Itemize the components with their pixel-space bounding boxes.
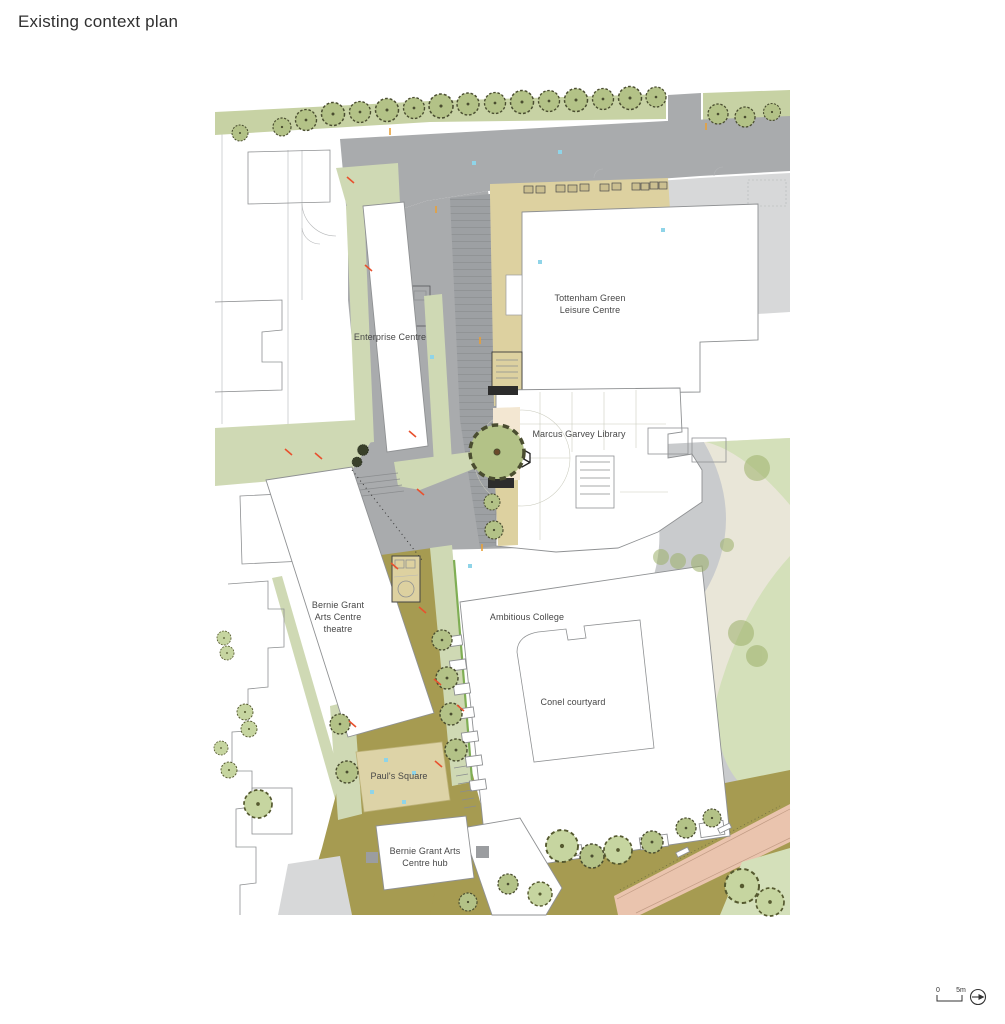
label-theatre-line1: Bernie Grant	[312, 600, 365, 610]
tree-icon	[641, 831, 663, 853]
tree-icon	[429, 94, 453, 118]
driveway-arc	[302, 204, 336, 244]
scale-start: 0	[936, 987, 940, 994]
tree-icon	[565, 89, 588, 112]
side-road-north	[668, 93, 701, 124]
tree-icon	[528, 882, 552, 906]
label-hub-line2: Centre hub	[402, 858, 448, 868]
tree-icon	[676, 818, 696, 838]
context-trees-west	[214, 631, 272, 818]
tree-icon	[436, 667, 458, 689]
tree-icon	[511, 91, 534, 114]
tree-icon	[445, 739, 467, 761]
tree-icon	[646, 87, 666, 107]
tree-icon	[221, 762, 237, 778]
leisure-notch	[506, 275, 522, 315]
tree-icon	[457, 93, 479, 115]
tree-icon	[376, 99, 399, 122]
context-building	[248, 150, 330, 204]
scale-bar: 0 5m	[936, 987, 985, 1005]
tree-trunk	[494, 449, 499, 454]
tree-icon	[322, 103, 345, 126]
tree-icon	[330, 714, 350, 734]
tree-icon	[498, 874, 518, 894]
north-arrow-icon	[971, 990, 986, 1005]
tree-icon	[220, 646, 234, 660]
scale-bracket	[937, 995, 962, 1001]
context-plan-page: Existing context plan	[0, 0, 1005, 1024]
tree-icon	[703, 809, 721, 827]
tree-icon	[352, 457, 362, 467]
label-library: Marcus Garvey Library	[532, 429, 626, 439]
tree-icon	[546, 830, 578, 862]
kiosk-group	[392, 556, 420, 602]
tree-icon	[619, 87, 642, 110]
tree-icon	[241, 721, 257, 737]
tree-icon	[708, 104, 728, 124]
tree-icon	[485, 521, 503, 539]
tree-icon	[350, 102, 371, 123]
tree-icon	[244, 790, 272, 818]
label-pauls-square: Paul's Square	[370, 771, 427, 781]
tree-icon	[358, 445, 369, 456]
curb-line	[288, 150, 302, 470]
tree-icon	[580, 844, 604, 868]
tree-icon	[459, 893, 477, 911]
label-theatre-line2: Arts Centre	[315, 612, 362, 622]
tree-icon	[593, 89, 614, 110]
context-buildings-southwest	[228, 581, 292, 915]
tree-icon	[604, 836, 632, 864]
tree-icon	[336, 761, 358, 783]
label-courtyard: Conel courtyard	[540, 697, 605, 707]
label-enterprise-centre: Enterprise Centre	[354, 332, 426, 342]
context-building	[215, 300, 282, 392]
hub-side-pad	[476, 846, 489, 858]
entrance-canopy-north	[488, 386, 518, 395]
hub-side-pad	[366, 852, 378, 863]
site-plan-map: Enterprise Centre Tottenham Green Leisur…	[0, 0, 1005, 1024]
tree-icon	[273, 118, 291, 136]
tree-icon	[296, 110, 317, 131]
label-college: Ambitious College	[490, 612, 564, 622]
tree-icon	[725, 869, 759, 903]
tree-icon	[756, 888, 784, 916]
tree-icon	[484, 494, 500, 510]
label-theatre-line3: theatre	[324, 624, 353, 634]
tree-icon	[217, 631, 231, 645]
tree-icon	[214, 741, 228, 755]
tree-icon	[735, 107, 755, 127]
tree-icon	[485, 93, 506, 114]
label-leisure-line2: Leisure Centre	[560, 305, 620, 315]
tree-icon	[539, 91, 560, 112]
label-leisure-line1: Tottenham Green	[554, 293, 625, 303]
walkway-southwest	[278, 856, 352, 915]
label-hub-line1: Bernie Grant Arts	[390, 846, 461, 856]
scale-end: 5m	[956, 987, 966, 994]
tree-icon	[404, 98, 425, 119]
tree-icon	[764, 104, 781, 121]
tree-icon	[232, 125, 248, 141]
tree-icon	[432, 630, 452, 650]
pavement-east	[757, 213, 790, 314]
tree-icon	[237, 704, 253, 720]
